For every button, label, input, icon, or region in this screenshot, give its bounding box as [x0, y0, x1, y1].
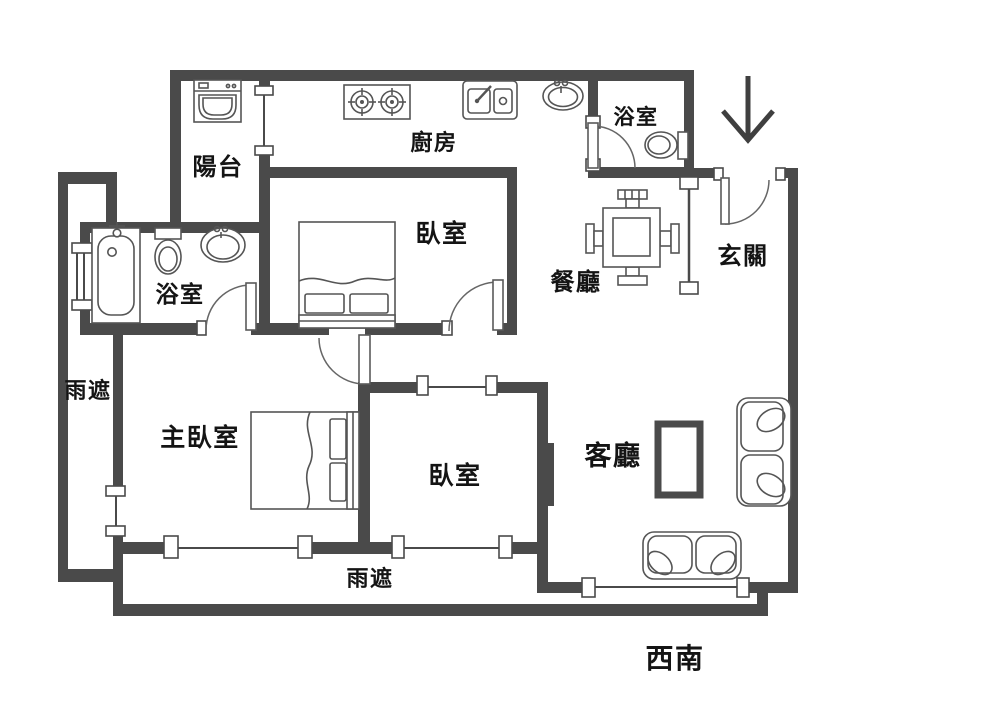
- door-master-bedroom: [319, 335, 370, 384]
- label-bedroom-upper: 臥室: [415, 219, 468, 248]
- door-bedroom-upper: [442, 280, 503, 335]
- label-balcony: 陽台: [193, 153, 244, 181]
- tv-icon: [548, 443, 554, 506]
- sofa-bottom-icon: [643, 532, 741, 579]
- label-living-room: 客廳: [585, 440, 642, 472]
- label-master-bedroom: 主臥室: [160, 423, 240, 452]
- label-rain-canopy-bottom: 雨遮: [346, 566, 393, 592]
- label-rain-canopy-left: 雨遮: [64, 378, 111, 404]
- bed-upper-icon: [299, 222, 395, 328]
- label-compass-southwest: 西南: [645, 642, 704, 675]
- bathtub-icon: [92, 222, 140, 323]
- label-bedroom-lower: 臥室: [428, 461, 481, 490]
- toilet-main-icon: [155, 228, 181, 274]
- label-dining: 餐廳: [551, 268, 602, 296]
- door-bathroom-main: [197, 283, 256, 335]
- bed-master-icon: [251, 412, 359, 509]
- wash-basin-icon: [543, 81, 583, 111]
- label-bathroom-guest: 浴室: [614, 105, 659, 129]
- washing-machine-icon: [194, 80, 241, 122]
- door-entry: [714, 168, 785, 224]
- sofa-right-icon: [737, 398, 791, 506]
- kitchen-sink-icon: [463, 81, 517, 119]
- floor-plan: 陽台 廚房 臥室 浴室 浴室 餐廳 玄關 主臥室 臥室 客廳 雨遮 雨遮 西南: [0, 0, 1000, 721]
- floor-plan-drawing: 陽台 廚房 臥室 浴室 浴室 餐廳 玄關 主臥室 臥室 客廳 雨遮 雨遮 西南: [0, 0, 1000, 721]
- entrance-arrow-icon: [723, 76, 773, 140]
- gas-stove-icon: [344, 85, 410, 119]
- label-kitchen: 廚房: [410, 130, 457, 156]
- toilet-guest-icon: [645, 132, 688, 159]
- partition-screen: [680, 177, 698, 294]
- label-bathroom-main: 浴室: [156, 281, 205, 308]
- doors: [197, 116, 785, 384]
- tv-cabinet-icon: [658, 424, 700, 495]
- label-foyer: 玄關: [718, 242, 769, 270]
